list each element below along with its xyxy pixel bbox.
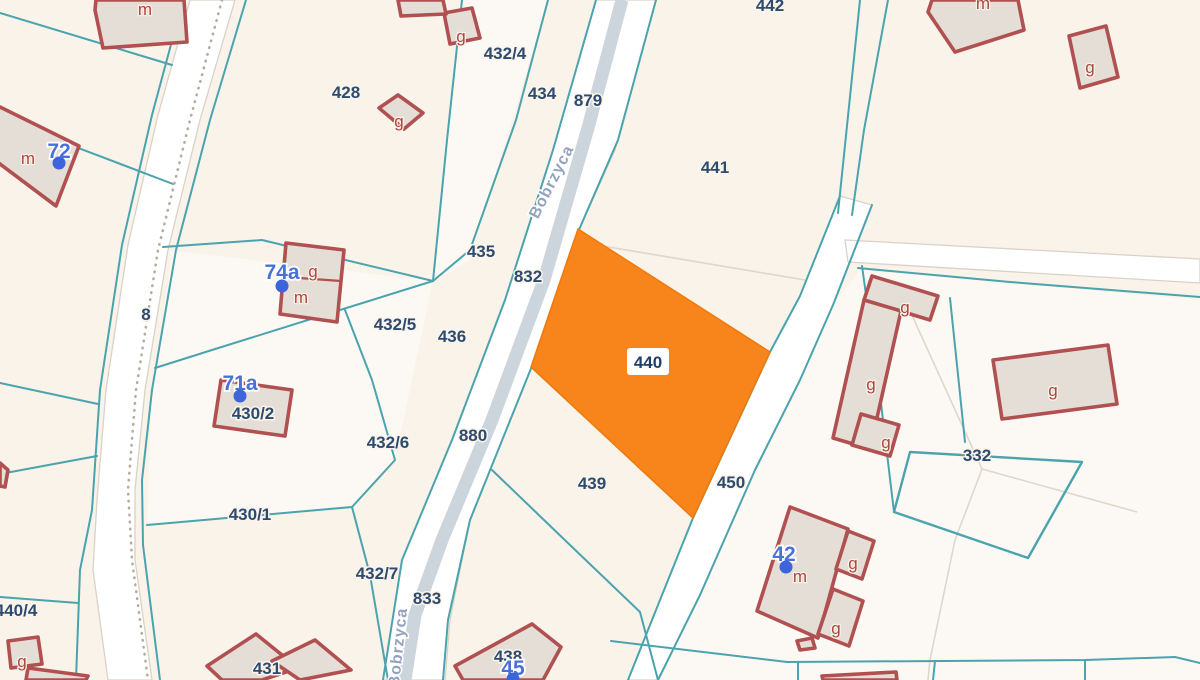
address-point-marker[interactable]	[53, 157, 66, 170]
parcel-number-label-442: 442	[756, 0, 784, 15]
building-usage-label: g	[394, 112, 403, 131]
building-footprint	[398, 0, 446, 16]
building-usage-label: g	[831, 619, 840, 638]
building-usage-label: m	[793, 567, 807, 586]
parcel-number-label-431: 431	[253, 659, 281, 678]
address-point-marker[interactable]	[780, 561, 793, 574]
building-usage-label: g	[1048, 381, 1057, 400]
building-usage-label: m	[976, 0, 990, 13]
parcel-number-label-432-6: 432/6	[367, 433, 410, 452]
parcel-number-label-832: 832	[514, 267, 542, 286]
building-usage-label: g	[17, 652, 26, 671]
parcel-number-label-440-4: 440/4	[0, 601, 38, 620]
parcel-number-label-428: 428	[332, 83, 360, 102]
building-usage-label: g	[881, 433, 890, 452]
parcel-number-label-332: 332	[963, 446, 991, 465]
building-usage-label: g	[456, 27, 465, 46]
parcel-number-label-441: 441	[701, 158, 729, 177]
parcel-number-label-432-7: 432/7	[356, 564, 399, 583]
parcel-number-label-435: 435	[467, 242, 495, 261]
parcel-number-label-439: 439	[578, 474, 606, 493]
building-footprint	[0, 463, 8, 487]
building-usage-label: m	[138, 0, 152, 19]
address-point-marker[interactable]	[234, 390, 247, 403]
parcel-number-label-8: 8	[141, 305, 150, 324]
parcel-number-label-436: 436	[438, 327, 466, 346]
parcel-number-label-430-1: 430/1	[229, 505, 272, 524]
parcel-number-label-833: 833	[413, 589, 441, 608]
building-usage-label: g	[866, 375, 875, 394]
parcel-number-label-430-2: 430/2	[232, 404, 275, 423]
parcel-number-label-450: 450	[717, 473, 745, 492]
building-usage-label: g	[1085, 58, 1094, 77]
parcel-number-label-880: 880	[459, 426, 487, 445]
parcel-number-label-432-5: 432/5	[374, 315, 417, 334]
highlighted-parcel-label: 440	[634, 353, 662, 372]
building-usage-label: m	[294, 288, 308, 307]
parcel-number-label-434: 434	[528, 84, 557, 103]
building-usage-label: m	[21, 149, 35, 168]
parcel-number-label-432-4: 432/4	[484, 44, 527, 63]
address-point-marker[interactable]	[276, 280, 289, 293]
map-canvas[interactable]: BobrzycaBobrzycammgggmgmgggggggm428432/4…	[0, 0, 1200, 680]
building-usage-label: g	[308, 262, 317, 281]
building-footprint	[797, 638, 815, 650]
parcel-number-label-879: 879	[574, 91, 602, 110]
building-usage-label: g	[900, 298, 909, 317]
building-usage-label: g	[848, 554, 857, 573]
